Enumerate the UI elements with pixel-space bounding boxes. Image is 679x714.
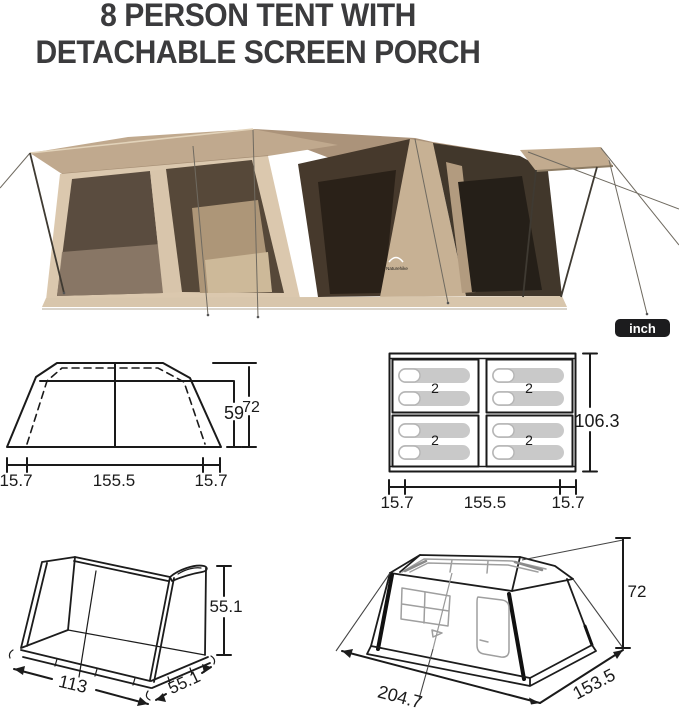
page-title: 8 PERSON TENT WITH DETACHABLE SCREEN POR… bbox=[15, 0, 500, 71]
tent-photo: Naturehike bbox=[0, 118, 679, 323]
pillow-icon bbox=[399, 392, 420, 405]
floor-width-label: 155.5 bbox=[464, 493, 507, 512]
pillow-icon bbox=[493, 446, 514, 459]
pillow-icon bbox=[493, 424, 514, 437]
front-view-diagram: 59 72 15.7 155.5 15.7 bbox=[0, 340, 270, 500]
porch-view-diagram: 55.1 113 55.1 bbox=[0, 540, 260, 714]
floor-depth-label: 106.3 bbox=[574, 411, 619, 431]
front-outer-height-label: 72 bbox=[242, 399, 260, 416]
capacity-label: 2 bbox=[431, 380, 439, 396]
pillow-icon bbox=[493, 369, 514, 382]
pillow-icon bbox=[399, 446, 420, 459]
porch-depth-label: 55.1 bbox=[165, 667, 203, 698]
perspective-view-diagram: 204.7 153.5 72 bbox=[330, 530, 679, 714]
brand-logo-text: Naturehike bbox=[386, 266, 408, 271]
front-right-ext-label: 15.7 bbox=[194, 471, 227, 490]
unit-badge: inch bbox=[615, 319, 670, 337]
product-infographic: 8 PERSON TENT WITH DETACHABLE SCREEN POR… bbox=[0, 0, 679, 714]
title-line-1: 8 PERSON TENT WITH bbox=[15, 0, 500, 34]
perspective-depth-label: 153.5 bbox=[569, 665, 618, 704]
capacity-label: 2 bbox=[431, 432, 439, 448]
unit-badge-label: inch bbox=[629, 321, 656, 336]
perspective-height-label: 72 bbox=[628, 582, 647, 601]
perspective-width-label: 204.7 bbox=[376, 682, 425, 713]
porch-width-label: 113 bbox=[57, 671, 89, 697]
pillow-icon bbox=[493, 392, 514, 405]
floor-plan-diagram: 2 2 2 2 106.3 15.7 155.5 15.7 bbox=[340, 340, 679, 520]
front-width-label: 155.5 bbox=[93, 471, 136, 490]
capacity-label: 2 bbox=[525, 432, 533, 448]
porch-height-label: 55.1 bbox=[209, 597, 242, 616]
title-line-2: DETACHABLE SCREEN PORCH bbox=[15, 34, 500, 71]
front-left-ext-label: 15.7 bbox=[0, 471, 33, 490]
pillow-icon bbox=[399, 369, 420, 382]
sleeping-pads bbox=[398, 368, 564, 460]
pillow-icon bbox=[399, 424, 420, 437]
capacity-label: 2 bbox=[525, 380, 533, 396]
floor-left-ext-label: 15.7 bbox=[380, 493, 413, 512]
front-inner-height-label: 59 bbox=[224, 403, 244, 423]
floor-right-ext-label: 15.7 bbox=[551, 493, 584, 512]
